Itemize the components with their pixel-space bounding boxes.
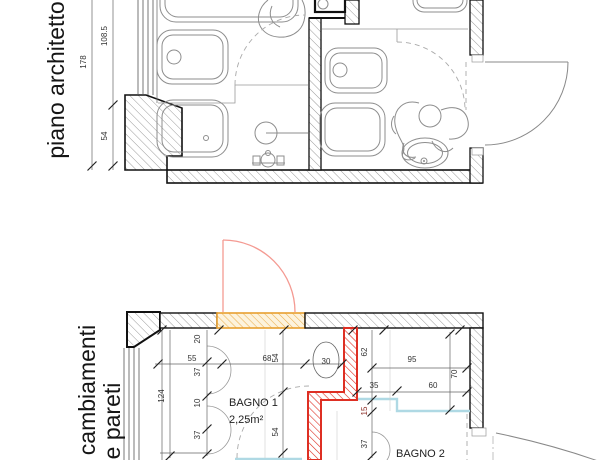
dim-label-37c: 37 [360,439,369,448]
dim-label-35: 35 [370,381,379,390]
door-swing-arc-bottom-right [496,433,598,460]
faucet-symbol [252,151,285,168]
door-swing-arc-right [485,62,568,145]
room-label-bagno1-area: 2,25m² [229,414,264,426]
bidet-left [157,30,228,84]
dim-label-62: 62 [360,347,369,356]
room-label-bagno1: BAGNO 1 [229,397,278,409]
dim-label-15: 15 [360,406,369,415]
bidet-left-inner [162,35,223,79]
fixture-arc-2 [207,406,231,454]
plan-top-architect: 178 108.5 54 piano architetto [43,0,568,183]
demolition-line-step [357,399,470,411]
new-door-swing-arc [223,240,295,312]
top-plan-dimensions: 178 108.5 54 [79,0,118,171]
wall-right-stub-top [470,0,483,55]
room-label-bagno2: BAGNO 2 [396,448,445,460]
niche-fixture-box [315,0,345,12]
top-plan-jamb-lines [138,0,157,103]
wall-left-stepped [125,95,182,170]
wall-bottom-band [167,170,482,183]
sink-oval-inner [408,143,443,164]
door-jamb-step [472,55,483,62]
dim-label-37a: 37 [193,367,202,376]
floor-drain [204,136,209,141]
person-head [419,105,441,127]
dim-label-54b: 54 [271,427,280,436]
dim-label-10: 10 [193,398,202,407]
wall-top-right [305,313,483,328]
bottom-plan-walls [127,312,486,436]
dim-label-124: 124 [157,389,166,403]
dim-label-54: 54 [100,131,109,140]
dim-label-20: 20 [193,334,202,343]
new-wall-red [308,328,357,460]
wall-top-left [160,313,217,328]
door-jamb-step [472,428,486,436]
bottom-plan-title-line2: e pareti [99,383,125,460]
drawing-svg: 178 108.5 54 piano architetto [0,0,600,460]
plan-bottom-changes: 124 20 37 10 37 55 68 54 54 30 62 95 35 … [74,240,598,460]
new-door-red [223,240,295,312]
dim-label-95: 95 [408,355,417,364]
dim-label-178: 178 [79,55,88,69]
dim-label-55: 55 [188,354,197,363]
fixture-arc-1 [207,346,231,394]
bottom-plan-title-line1: cambiamenti [74,325,100,455]
bidet-right-inner [330,53,382,88]
dim-label-70: 70 [450,369,459,378]
dim-label-60: 60 [429,381,438,390]
person-figure-right [392,102,469,160]
top-plan-walls [125,0,483,183]
bidet-right-drain [333,63,347,77]
bathtub-cut-inner [165,0,293,17]
bidet-left-drain [167,50,181,64]
fixture-cut-top-right [413,0,467,12]
fixture-cut-top-right-inner [417,0,463,8]
top-plan-doors [235,15,568,145]
wall-left-black [127,312,160,347]
sink-drain-dot [423,160,425,162]
floor-plan-canvas: 178 108.5 54 piano architetto [0,0,600,460]
dim-label-54a: 54 [271,353,280,362]
dim-label-37b: 37 [193,430,202,439]
door-jamb-step [472,148,483,155]
dimension-chain-lines [92,0,113,170]
top-plan-title: piano architetto [43,1,69,158]
wall-middle-vertical [309,18,321,170]
bottom-plan-extension-lines [265,330,493,460]
wall-right [470,328,483,428]
dim-label-108-5: 108.5 [100,25,109,46]
bathtub-cut [160,0,298,22]
door-swing-dashed-left [235,15,305,85]
toilet-right-inner [325,108,380,151]
wall-top-chunk [345,0,359,24]
new-opening-orange [217,313,305,328]
fixture-arc-3 [372,432,390,460]
dim-label-30: 30 [322,357,331,366]
door-swing-dashed-inner [397,42,465,110]
